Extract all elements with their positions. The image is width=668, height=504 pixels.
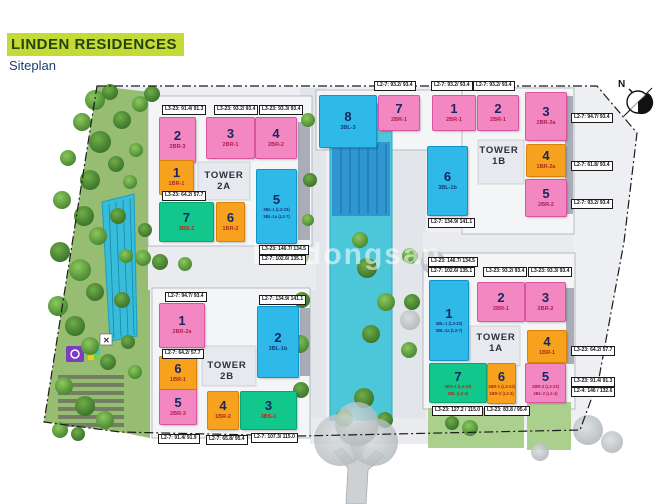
area-label: L2-7: 107.3/ 115.0: [251, 433, 298, 443]
area-label: L3-23: 93.2/ 93.4: [483, 267, 527, 277]
unit-box-1a-4: 41BR-1: [528, 331, 566, 362]
unit-type-label: 2BR-2: [268, 142, 284, 149]
unit-number: 4: [543, 335, 550, 348]
unit-type-label: 1BR-1 (L3-23): [488, 384, 515, 390]
area-label: L3-23: 91.4/ 91.3: [162, 105, 206, 115]
tree-icon: [89, 227, 107, 245]
unit-number: 3: [542, 291, 549, 304]
unit-type-label: 3BS-1: [261, 414, 277, 421]
tree-icon: [178, 257, 192, 271]
unit-type-label: 2BR-3 (L3-23): [532, 384, 559, 390]
area-label: L2-7: 94.7/ 93.4: [165, 292, 207, 302]
unit-box-2b-1: 12BR-2a: [160, 304, 204, 347]
area-label: L3-23: 64.2/ 57.7: [571, 346, 615, 356]
area-label: L2-7: 93.2/ 93.4: [473, 81, 515, 91]
unit-box-1a-7: 73BS-1 (L3-23)3BL (L2-4): [430, 364, 486, 402]
unit-box-1b-4: 41BR-2a: [527, 145, 565, 176]
unit-number: 2: [174, 129, 181, 142]
tree-icon: [69, 259, 91, 281]
area-label: L3-23: 127.2 / 115.0: [432, 406, 483, 416]
tree-icon: [138, 223, 152, 237]
tower-label-1a: TOWER1A: [476, 332, 515, 355]
unit-number: 2: [494, 102, 501, 115]
unit-number: 3: [265, 399, 272, 412]
tree-icon: [129, 143, 143, 157]
area-label: L2-7: 65.8/ 95.4: [206, 435, 248, 445]
tree-icon: [302, 214, 314, 226]
tree-icon: [65, 316, 85, 336]
area-label: L3-23: 93.3/ 93.4: [259, 105, 303, 115]
unit-number: 2: [497, 291, 504, 304]
tree-icon: [73, 113, 91, 131]
area-label: L2-7: 102.6/ 135.1: [259, 255, 306, 265]
unit-box-1b-1: 12BR-1: [433, 96, 475, 130]
unit-type-label: 2BR-2: [538, 202, 554, 209]
tree-icon: [123, 175, 137, 189]
unit-type-label: 2BR-1: [223, 142, 239, 149]
tree-icon: [89, 131, 111, 153]
tree-icon: [86, 283, 104, 301]
page-title: LINDEN RESIDENCES: [7, 33, 184, 56]
tree-icon: [128, 365, 142, 379]
unit-type-label: 2BR-1: [490, 117, 506, 124]
unit-number: 6: [498, 370, 505, 383]
unit-number: 2: [274, 331, 281, 344]
unit-number: 7: [395, 102, 402, 115]
tree-icon: [303, 173, 317, 187]
unit-number: 4: [219, 399, 226, 412]
area-label: L2-7: 134.9/ 141.1: [428, 218, 475, 228]
unit-box-2b-6: 61BR-1: [160, 357, 196, 390]
tree-icon: [53, 191, 71, 209]
tree-icon: [60, 150, 76, 166]
unit-type-label: 3BL-1 (L3-23): [263, 207, 290, 213]
unit-number: 1: [178, 314, 185, 327]
svg-text:N: N: [618, 79, 625, 90]
area-label: L2-7: 94.7/ 93.4: [571, 113, 613, 123]
unit-box-2a-1: 11BR-1: [160, 161, 193, 194]
unit-box-1a-2: 22BR-1: [478, 283, 524, 321]
area-label: L2-7: 102.6/ 135.1: [428, 267, 475, 277]
unit-number: 5: [542, 370, 549, 383]
gray-tree-icon: [531, 443, 549, 461]
tree-icon: [71, 427, 85, 441]
tower-label-1b: TOWER1B: [479, 145, 518, 168]
unit-box-1b-2: 22BR-1: [478, 96, 518, 130]
north-compass-icon: N: [618, 79, 653, 116]
crossing-icon: ✕: [100, 334, 112, 345]
unit-box-2a-5: 53BL-1 (L3-23)3BL-1a (L2-7): [257, 170, 296, 243]
unit-number: 1: [173, 166, 180, 179]
area-label: L2-7: 93.2/ 93.4: [431, 81, 473, 91]
unit-number: 4: [272, 127, 279, 140]
unit-type-label: 3BL-3: [340, 125, 355, 132]
unit-box-1b-5: 52BR-2: [526, 180, 566, 216]
area-label: L2-7: 61.8/ 93.4: [571, 161, 613, 171]
unit-number: 4: [542, 149, 549, 162]
siteplan: ✕ N batdongsan 22BR-332BR-1: [0, 0, 668, 504]
unit-number: 7: [454, 370, 461, 383]
unit-type-label: 3BS-1 (L3-23): [445, 384, 472, 390]
unit-box-1a-3: 32BR-2: [526, 283, 565, 321]
tree-icon: [135, 250, 151, 266]
tree-icon: [108, 156, 124, 172]
unit-number: 5: [273, 193, 280, 206]
area-label: L3-23: 146.7/ 134.5: [259, 245, 309, 255]
tree-icon: [119, 249, 133, 263]
unit-type-label: 3BL-1a (L2-7): [263, 214, 290, 220]
gray-tree-icon: [601, 431, 623, 453]
unit-box-1b-8: 83BL-3: [320, 96, 376, 147]
unit-number: 8: [344, 110, 351, 123]
tree-icon: [401, 342, 417, 358]
unit-type-label: 2BR-3: [170, 411, 186, 418]
tree-icon: [377, 293, 395, 311]
unit-box-2b-2: 23BL-1b: [258, 307, 298, 377]
area-label: L3-23: 93.2/ 93.4: [214, 105, 258, 115]
tree-icon: [144, 86, 160, 102]
unit-type-label: 1BR-1: [170, 377, 186, 384]
unit-type-label: 2BR-2a: [537, 120, 556, 127]
unit-type-label: 1BR-2a: [537, 164, 556, 171]
tree-icon: [55, 377, 73, 395]
area-label: L2-4: 146 / 132.6: [571, 387, 615, 397]
unit-box-1b-7: 72BR-1: [379, 96, 419, 130]
area-label: L3-23: 146.7/ 134.5: [428, 257, 478, 267]
unit-box-1b-6: 63BL-1b: [428, 147, 467, 215]
tree-icon: [152, 254, 168, 270]
gray-tree-icon: [400, 310, 420, 330]
tree-icon: [121, 335, 135, 349]
unit-number: 1: [445, 307, 452, 320]
unit-number: 6: [174, 362, 181, 375]
unit-type-label: 2BR-3: [170, 144, 186, 151]
tower-label-2a: TOWER2A: [204, 170, 243, 193]
unit-type-label: 1BR-2: [223, 226, 239, 233]
unit-number: 6: [444, 170, 451, 183]
tree-icon: [81, 337, 99, 355]
unit-type-label: 1BR-1: [169, 181, 185, 188]
tree-icon: [96, 411, 114, 429]
unit-type-label: 3BS-1: [179, 226, 195, 233]
unit-box-2b-5: 52BR-3: [160, 390, 196, 424]
area-label: L2-7: 93.2/ 93.4: [374, 81, 416, 91]
unit-number: 7: [183, 211, 190, 224]
unit-type-label: 2BR-1: [391, 117, 407, 124]
unit-box-2a-2: 22BR-3: [160, 118, 195, 162]
tree-icon: [445, 416, 459, 430]
unit-box-2b-4: 41BR-2: [208, 392, 238, 429]
unit-box-1a-6: 61BR-1 (L3-23)1BR-2 (L2-4): [488, 364, 515, 403]
tree-icon: [114, 292, 130, 308]
unit-type-label: 2BR-1: [493, 306, 509, 313]
unit-type-label: 1BR-2 (L2-4): [489, 391, 514, 397]
unit-box-2b-3: 33BS-1: [241, 392, 296, 429]
tree-icon: [362, 325, 380, 343]
unit-number: 5: [542, 187, 549, 200]
unit-type-label: 3BL-1b: [438, 185, 457, 192]
unit-number: 1: [450, 102, 457, 115]
unit-type-label: 2BR-2: [538, 306, 554, 313]
area-label: L2-7: 64.2/ 57.7: [162, 349, 204, 359]
unit-number: 3: [227, 127, 234, 140]
tree-icon: [50, 242, 70, 262]
tree-icon: [75, 396, 95, 416]
unit-type-label: 1BR-2: [215, 414, 231, 421]
tree-icon: [48, 296, 68, 316]
area-label: L2-7: 93.2/ 93.4: [571, 199, 613, 209]
tree-icon: [85, 90, 105, 110]
tree-icon: [462, 420, 478, 436]
unit-type-label: 2BR-2a: [173, 329, 192, 336]
tree-icon: [110, 208, 126, 224]
page-subtitle: Siteplan: [9, 58, 184, 73]
unit-type-label: 3BL-1a (L2-7): [436, 328, 463, 334]
area-label: L2-7: 134.9/ 141.1: [259, 295, 306, 305]
unit-box-2a-6: 61BR-2: [217, 203, 244, 241]
siteplan-page: LINDEN RESIDENCES Siteplan: [0, 0, 668, 504]
area-label: L3-23: 91.4/ 91.3: [571, 377, 615, 387]
tree-icon: [113, 111, 131, 129]
svg-text:✕: ✕: [103, 336, 110, 345]
tree-icon: [100, 354, 116, 370]
unit-box-1a-5: 52BR-3 (L3-23)3BL-2 (L2-4): [526, 364, 565, 402]
unit-number: 3: [542, 105, 549, 118]
unit-number: 6: [227, 211, 234, 224]
unit-box-2a-7: 73BS-1: [160, 203, 213, 241]
tree-icon: [404, 294, 420, 310]
unit-type-label: 1BR-1: [539, 350, 555, 357]
tree-icon: [301, 113, 315, 127]
tower-label-2b: TOWER2B: [207, 360, 246, 383]
unit-number: 5: [174, 396, 181, 409]
area-label: L3-23: 64.2/ 57.7: [162, 191, 206, 201]
area-label: L3-23: 83.8 / 95.4: [484, 406, 530, 416]
area-label: L2-7: 91.4/ 91.9: [158, 434, 200, 444]
area-label: L3-23: 93.3/ 93.4: [528, 267, 572, 277]
page-header: LINDEN RESIDENCES Siteplan: [7, 33, 184, 73]
unit-type-label: 3BL-1b: [269, 346, 288, 353]
unit-type-label: 3BL (L2-4): [448, 391, 468, 397]
unit-box-1b-3: 32BR-2a: [526, 93, 566, 140]
unit-box-2a-4: 42BR-2: [256, 118, 296, 158]
unit-box-1a-1: 13BL-1 (L3-23)3BL-1a (L2-7): [430, 281, 468, 360]
unit-box-2a-3: 32BR-1: [207, 118, 254, 158]
unit-type-label: 2BR-1: [446, 117, 462, 124]
unit-type-label: 3BL-2 (L2-4): [533, 391, 557, 397]
unit-type-label: 3BL-1 (L3-23): [436, 321, 463, 327]
